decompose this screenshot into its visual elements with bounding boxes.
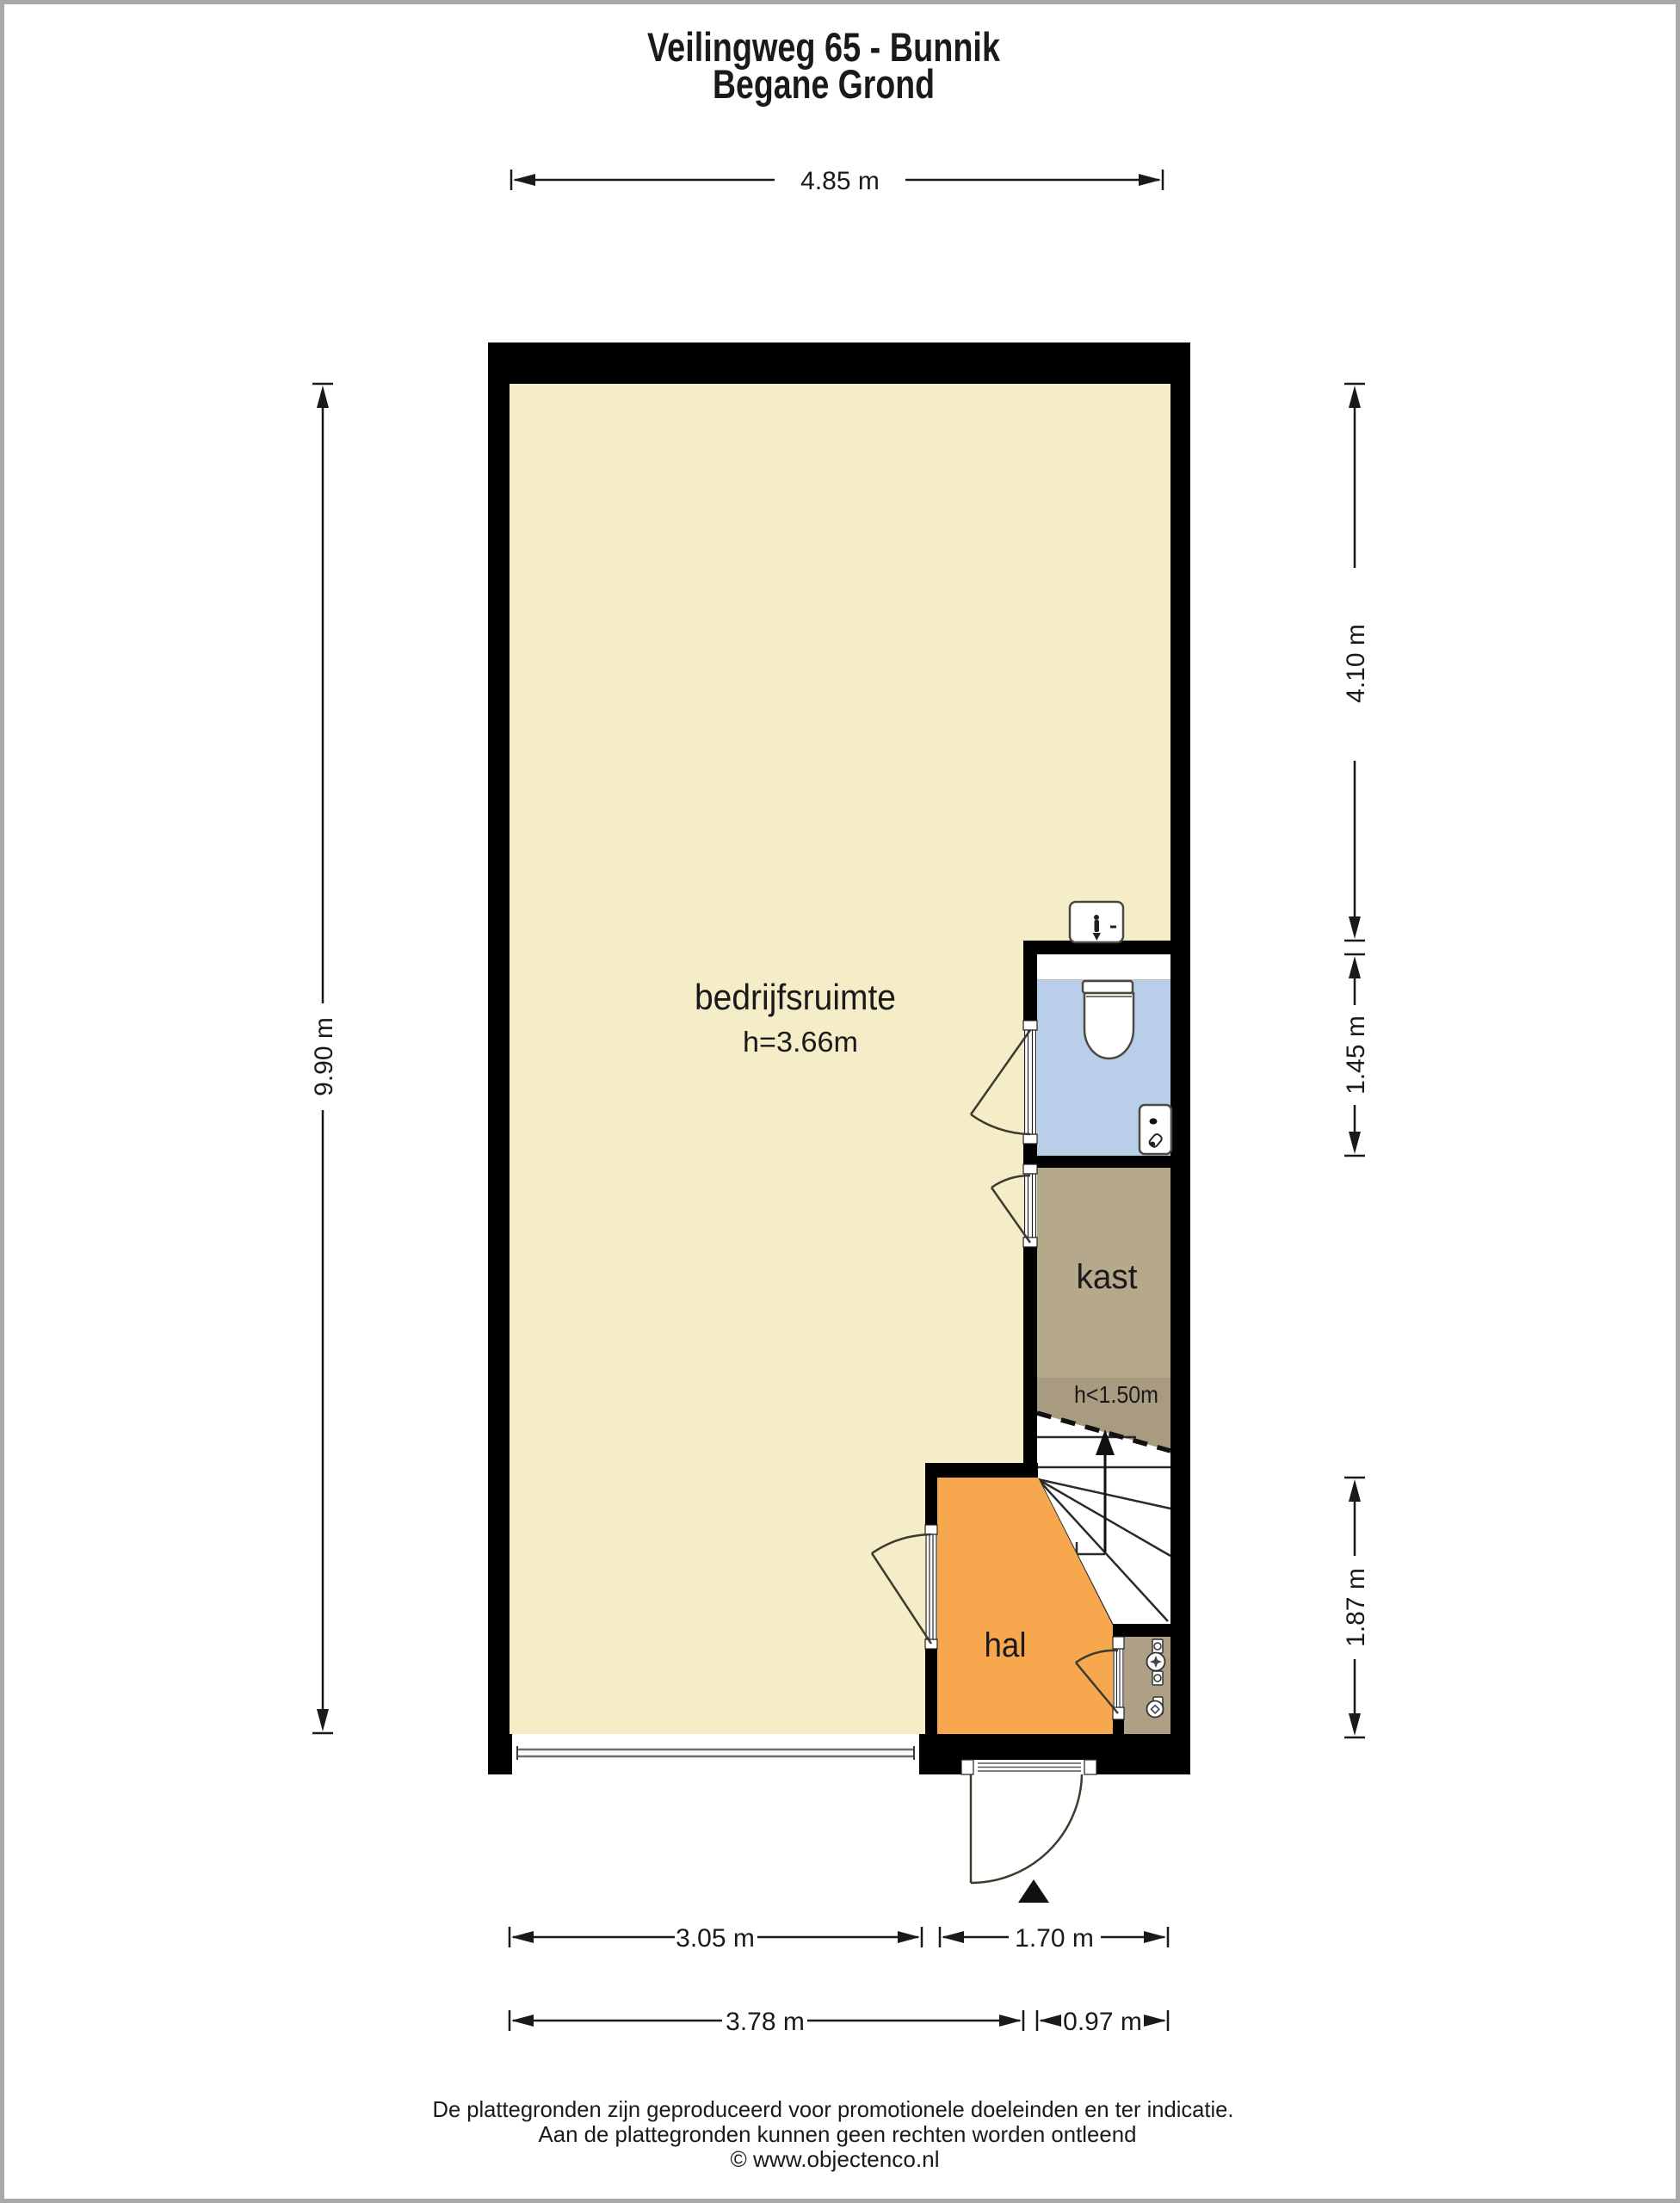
svg-text:Begane Grond: Begane Grond [713,61,935,107]
svg-text:3.78 m: 3.78 m [726,2008,805,2036]
svg-text:© www.objectenco.nl: © www.objectenco.nl [731,2146,940,2172]
svg-text:h=3.66m: h=3.66m [743,1026,858,1058]
svg-text:De plattegronden zijn geproduc: De plattegronden zijn geproduceerd voor … [433,2096,1234,2122]
svg-text:1.45 m: 1.45 m [1342,1015,1370,1095]
svg-text:Aan de plattegronden kunnen ge: Aan de plattegronden kunnen geen rechten… [539,2121,1137,2147]
svg-text:3.05 m: 3.05 m [676,1924,755,1953]
svg-text:4.85 m: 4.85 m [800,167,880,195]
svg-text:0.97 m: 0.97 m [1063,2008,1142,2036]
svg-text:h<1.50m: h<1.50m [1074,1381,1158,1408]
svg-text:hal: hal [985,1626,1027,1664]
svg-text:9.90 m: 9.90 m [310,1017,338,1096]
svg-text:bedrijfsruimte: bedrijfsruimte [695,977,896,1017]
svg-text:1.70 m: 1.70 m [1015,1924,1094,1953]
svg-text:4.10 m: 4.10 m [1342,624,1370,703]
svg-text:1.87 m: 1.87 m [1342,1568,1370,1647]
svg-text:kast: kast [1077,1258,1138,1296]
